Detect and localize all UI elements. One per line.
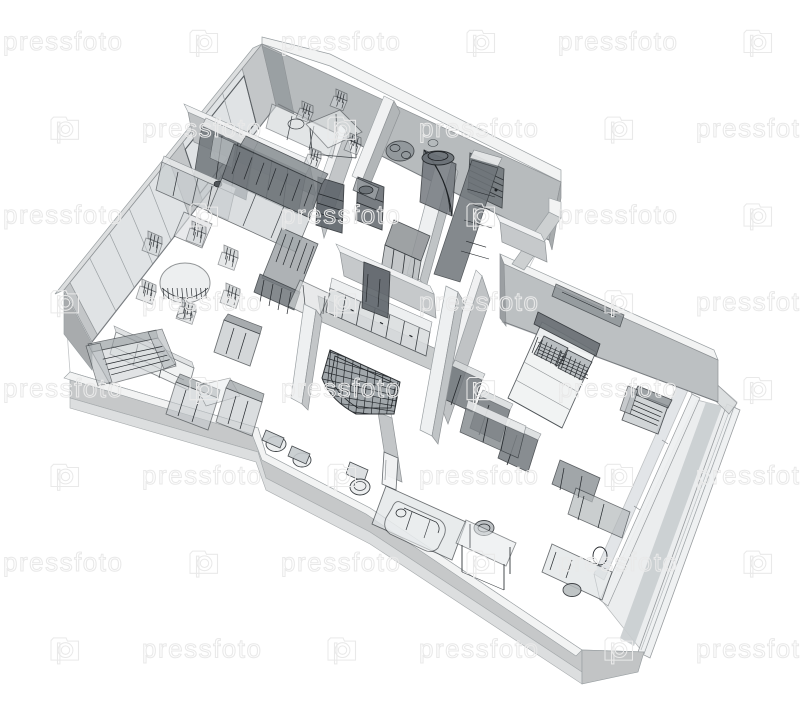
svg-text:pressfoto: pressfoto [696, 460, 800, 490]
svg-text:pressfoto: pressfoto [3, 547, 123, 577]
svg-text:pressfoto: pressfoto [142, 286, 262, 316]
svg-text:pressfoto: pressfoto [3, 200, 123, 230]
svg-text:pressfoto: pressfoto [419, 113, 539, 143]
svg-text:pressfoto: pressfoto [281, 200, 401, 230]
svg-text:pressfoto: pressfoto [696, 286, 800, 316]
svg-text:pressfoto: pressfoto [281, 373, 401, 403]
svg-text:pressfoto: pressfoto [281, 547, 401, 577]
svg-text:pressfoto: pressfoto [558, 26, 678, 56]
svg-text:pressfoto: pressfoto [142, 113, 262, 143]
svg-text:pressfoto: pressfoto [558, 373, 678, 403]
svg-text:pressfoto: pressfoto [696, 634, 800, 664]
svg-text:pressfoto: pressfoto [142, 460, 262, 490]
svg-text:pressfoto: pressfoto [142, 634, 262, 664]
svg-text:pressfoto: pressfoto [558, 200, 678, 230]
svg-text:pressfoto: pressfoto [3, 373, 123, 403]
svg-text:pressfoto: pressfoto [419, 460, 539, 490]
svg-text:pressfoto: pressfoto [696, 113, 800, 143]
svg-text:pressfoto: pressfoto [281, 26, 401, 56]
svg-text:pressfoto: pressfoto [419, 286, 539, 316]
svg-text:pressfoto: pressfoto [3, 26, 123, 56]
svg-text:pressfoto: pressfoto [558, 547, 678, 577]
svg-text:pressfoto: pressfoto [419, 634, 539, 664]
